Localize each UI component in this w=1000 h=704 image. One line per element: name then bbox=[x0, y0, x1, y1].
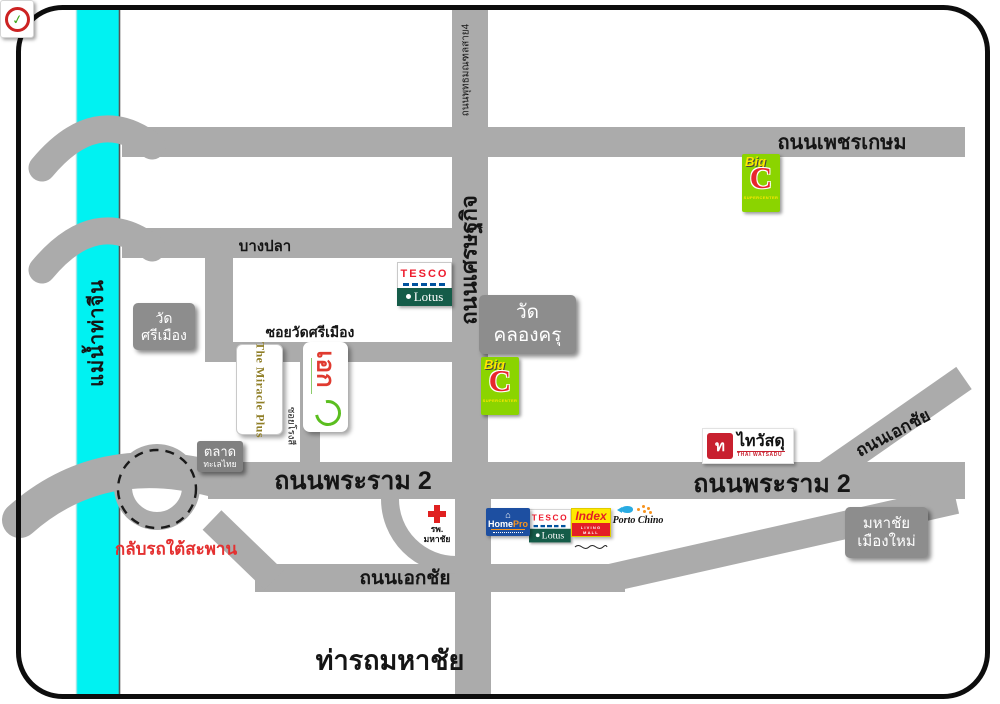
thai-watsadu-text-block: ไทวัสดุ THAI WATSADU bbox=[737, 434, 785, 458]
homepro-home-text: Home bbox=[488, 519, 513, 529]
index-tagline-squiggle bbox=[574, 543, 608, 550]
road-branch-to-soi bbox=[205, 256, 233, 352]
tesco-wordmark: TESCO bbox=[401, 268, 449, 280]
place-wat-si-mueang-line2: ศรีเมือง bbox=[141, 327, 187, 344]
label-u-turn-under-bridge: กลับรถใต้สะพาน bbox=[115, 536, 237, 563]
thai-watsadu-wordmark: ไทวัสดุ bbox=[737, 434, 785, 450]
big-c-supercenter-text: SUPERCENTER bbox=[742, 195, 780, 200]
road-label-soi-small: ซอยโรงสี bbox=[284, 407, 299, 445]
ek-wordmark: เอก bbox=[306, 350, 345, 387]
big-c-logo-north: Big C SUPERCENTER bbox=[742, 154, 780, 212]
fish-body-icon bbox=[621, 506, 633, 513]
map-canvas: แม่น้ำท่าจีน ถนนพุทธมณฑลสาย4 ถนนเศรษฐกิจ… bbox=[0, 0, 1000, 704]
miracle-plus-sign: The Miracle Plus bbox=[236, 344, 283, 435]
big-c-supercenter-text: SUPERCENTER bbox=[481, 398, 519, 403]
lotus-flower-icon bbox=[536, 533, 540, 537]
thai-watsadu-logo: ท ไทวัสดุ THAI WATSADU bbox=[702, 428, 794, 464]
place-wat-khlong-khru-line2: คลองครุ bbox=[494, 325, 562, 347]
homepro-tagline-line bbox=[493, 532, 522, 533]
thai-watsadu-english: THAI WATSADU bbox=[737, 451, 785, 458]
porto-chino-fish-icon bbox=[611, 504, 665, 515]
homepro-pro-text: Pro bbox=[513, 519, 528, 529]
lotus-logo-bottom: Lotus bbox=[529, 529, 571, 543]
place-mahachai-line2: เมืองใหม่ bbox=[857, 533, 915, 551]
ek-green-swoosh-icon bbox=[309, 395, 345, 431]
place-wat-khlong-khru: วัด คลองครุ bbox=[479, 295, 576, 354]
index-living-mall-bar: LIVING MALL bbox=[572, 523, 610, 536]
place-mahachai-mueang-mai: มหาชัย เมืองใหม่ bbox=[845, 507, 928, 558]
river-label: แม่น้ำท่าจีน bbox=[80, 279, 112, 387]
hospital-label: รพ. มหาชัย bbox=[424, 524, 451, 544]
thai-watsadu-house-icon: ท bbox=[707, 433, 733, 459]
ek-sign: เอก bbox=[303, 342, 348, 432]
tesco-wordmark: TESCO bbox=[532, 514, 568, 523]
lotus-flower-icon bbox=[406, 294, 411, 299]
index-wordmark: Index bbox=[572, 509, 610, 523]
homepro-logo: ⌂ HomePro bbox=[486, 508, 530, 536]
tesco-lotus-logo-north: TESCO Lotus bbox=[397, 262, 452, 306]
road-label-ekachai-lower: ถนนเอกชัย bbox=[360, 563, 451, 593]
miracle-plus-wordmark: The Miracle Plus bbox=[252, 342, 267, 438]
tesco-logo-top: TESCO bbox=[397, 262, 452, 288]
index-yellow-box: Index LIVING MALL bbox=[571, 508, 611, 537]
big-c-logo-south: Big C SUPERCENTER bbox=[481, 357, 519, 415]
talay-thai-logo: ✓ bbox=[0, 0, 34, 38]
index-logo: Index LIVING MALL bbox=[571, 508, 611, 555]
lotus-logo-bottom: Lotus bbox=[397, 288, 452, 306]
road-label-phutthamonthon-sai4: ถนนพุทธมณฑลสาย4 bbox=[459, 24, 474, 116]
place-talat-talay-thai: ตลาด ทะเลไทย bbox=[197, 441, 243, 472]
tesco-dashes-icon bbox=[403, 283, 447, 286]
road-label-soi-wat-si-mueang: ซอยวัดศรีเมือง bbox=[266, 322, 355, 344]
tesco-lotus-logo-south: TESCO Lotus bbox=[529, 509, 571, 542]
place-mahachai-line1: มหาชัย bbox=[863, 515, 910, 533]
place-wat-si-mueang: วัด ศรีเมือง bbox=[133, 303, 195, 350]
place-wat-khlong-khru-line1: วัด bbox=[516, 302, 539, 324]
porto-chino-logo: Porto Chino bbox=[611, 504, 665, 526]
talay-thai-shrimp-icon: ✓ bbox=[11, 12, 24, 27]
porto-chino-wordmark: Porto Chino bbox=[611, 515, 665, 526]
label-tha-rot-mahachai: ท่ารถมหาชัย bbox=[316, 639, 465, 682]
road-label-rama2-west: ถนนพระราม 2 bbox=[274, 461, 431, 501]
place-wat-si-mueang-line1: วัด bbox=[156, 310, 173, 327]
tesco-dashes-icon bbox=[533, 525, 566, 527]
lotus-wordmark: Lotus bbox=[542, 530, 565, 540]
homepro-orange-rule bbox=[491, 529, 525, 530]
road-label-rama2-east: ถนนพระราม 2 bbox=[693, 464, 850, 504]
hospital-cross-icon bbox=[428, 505, 446, 523]
tesco-logo-top: TESCO bbox=[529, 509, 571, 529]
hospital-label-line2: มหาชัย bbox=[424, 534, 451, 544]
place-talat-line1: ตลาด bbox=[204, 444, 236, 459]
homepro-house-icon: ⌂ bbox=[505, 512, 510, 519]
road-label-bangpla: บางปลา bbox=[239, 234, 291, 258]
talay-thai-ring-icon: ✓ bbox=[5, 7, 30, 32]
small-fishes-icon bbox=[637, 508, 640, 511]
road-label-phetkasem: ถนนเพชรเกษม bbox=[777, 126, 906, 158]
homepro-wordmark: HomePro bbox=[488, 519, 528, 529]
lotus-wordmark: Lotus bbox=[414, 290, 444, 303]
hospital-label-line1: รพ. bbox=[424, 524, 451, 534]
place-talat-line2: ทะเลไทย bbox=[203, 459, 236, 469]
